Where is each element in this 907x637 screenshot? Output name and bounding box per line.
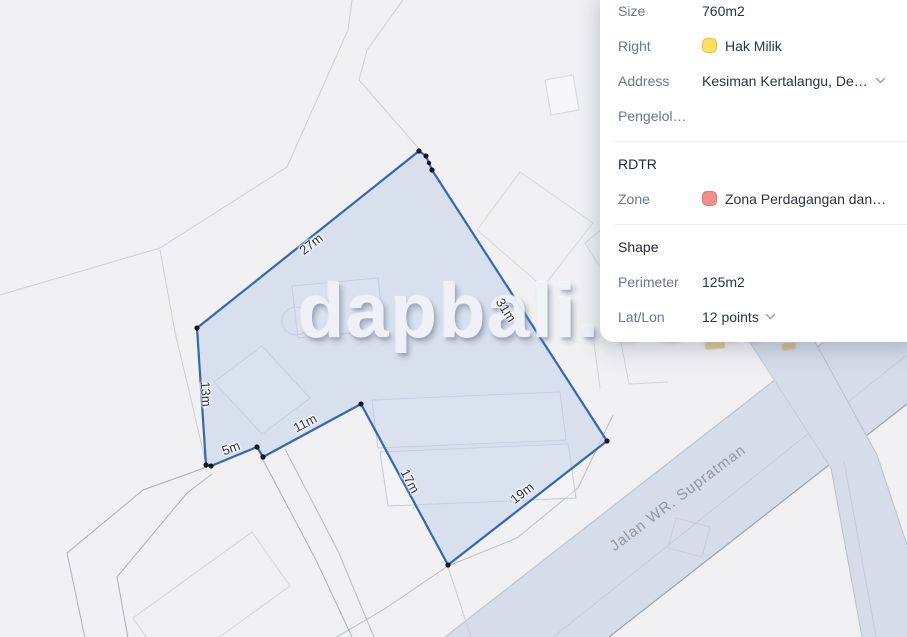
perimeter-label: Perimeter	[618, 274, 702, 290]
row-right: Right Hak Milik	[600, 28, 907, 63]
zone-label: Zone	[618, 191, 702, 207]
address-value: Kesiman Kertalangu, De…	[702, 73, 868, 89]
row-pengelola: Pengelol…	[600, 98, 907, 133]
right-label: Right	[618, 38, 702, 54]
row-address[interactable]: Address Kesiman Kertalangu, De…	[600, 63, 907, 98]
chevron-down-icon[interactable]	[765, 313, 776, 320]
pengelola-label: Pengelol…	[618, 108, 702, 124]
map-label-fragment	[782, 342, 797, 350]
divider	[615, 141, 907, 142]
divider	[615, 224, 907, 225]
zone-color-swatch	[702, 191, 717, 206]
chevron-down-icon[interactable]	[875, 77, 886, 84]
right-value: Hak Milik	[702, 38, 782, 54]
shape-header-text: Shape	[618, 239, 658, 255]
right-color-swatch	[702, 38, 717, 53]
shape-section-header: Shape	[600, 229, 907, 264]
info-panel: Size 760m2 Right Hak Milik Address Kesim…	[600, 0, 907, 342]
rdtr-section-header: RDTR	[600, 146, 907, 181]
zone-value: Zona Perdagangan dan…	[702, 191, 886, 207]
right-value-text: Hak Milik	[725, 38, 782, 54]
latlon-label: Lat/Lon	[618, 309, 702, 325]
row-zone: Zone Zona Perdagangan dan…	[600, 181, 907, 216]
perimeter-value: 125m2	[702, 274, 745, 290]
map-app: dapbali.com Jalan WR. Supratman 27m 31m …	[0, 0, 907, 637]
edge-label-13m: 13m	[198, 381, 215, 407]
row-size: Size 760m2	[600, 0, 907, 28]
size-label: Size	[618, 3, 702, 19]
row-perimeter: Perimeter 125m2	[600, 264, 907, 299]
address-label: Address	[618, 73, 702, 89]
zone-value-text: Zona Perdagangan dan…	[725, 191, 886, 207]
row-latlon[interactable]: Lat/Lon 12 points	[600, 299, 907, 334]
latlon-value: 12 points	[702, 309, 759, 325]
rdtr-header-text: RDTR	[618, 156, 657, 172]
size-value: 760m2	[702, 3, 745, 19]
